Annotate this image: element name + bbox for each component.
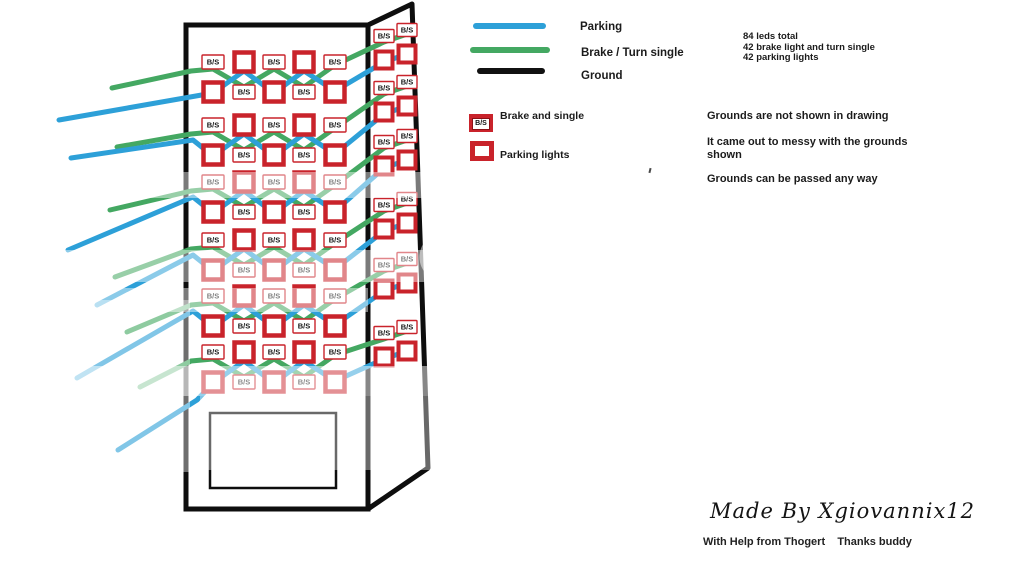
watermark-band	[0, 172, 438, 198]
led-brake-single-label: B/S	[238, 151, 251, 160]
led-brake-single-label: B/S	[298, 151, 311, 160]
led-brake-single-label: B/S	[401, 26, 414, 35]
note-messy-line1: It came out to messy with the grounds	[707, 136, 907, 148]
stat-total-leds: 84 leds total	[743, 32, 875, 43]
led-parking	[376, 221, 393, 238]
led-brake-single-label: B/S	[401, 323, 414, 332]
led-parking	[235, 116, 254, 135]
led-brake-single-label: B/S	[207, 121, 220, 130]
led-parking	[204, 317, 223, 336]
led-parking	[376, 158, 393, 175]
led-parking	[295, 231, 314, 250]
led-brake-single-label: B/S	[238, 322, 251, 331]
led-parking	[204, 83, 223, 102]
led-brake-single-label: B/S	[378, 84, 391, 93]
led-parking	[376, 281, 393, 298]
led-parking	[376, 104, 393, 121]
led-parking	[235, 343, 254, 362]
led-brake-single-label: B/S	[378, 329, 391, 338]
led-parking	[204, 203, 223, 222]
led-brake-single-label: B/S	[401, 132, 414, 141]
led-brake-single-label: B/S	[329, 348, 342, 357]
led-parking	[399, 215, 416, 232]
led-brake-single-label: B/S	[378, 138, 391, 147]
brake-single-led-icon-label: B/S	[472, 118, 490, 130]
legend-label-brake-single: Brake and single	[500, 110, 584, 122]
made-by-signature: Made By Xgiovannix12	[710, 499, 975, 523]
led-brake-single-label: B/S	[268, 348, 281, 357]
watermark-band	[0, 300, 190, 472]
led-parking	[295, 343, 314, 362]
led-brake-single-label: B/S	[329, 236, 342, 245]
wiring-diagram-page: B/SB/SB/SB/SB/SB/SB/SB/SB/SB/SB/SB/SB/SB…	[0, 0, 1024, 563]
led-parking	[399, 152, 416, 169]
led-parking	[376, 52, 393, 69]
led-parking	[326, 203, 345, 222]
stat-parking-leds: 42 parking lights	[743, 53, 875, 64]
led-parking	[265, 83, 284, 102]
legend-label-parking: Parking	[580, 21, 622, 33]
led-parking	[204, 146, 223, 165]
led-brake-single-label: B/S	[207, 236, 220, 245]
led-brake-single-label: B/S	[298, 88, 311, 97]
led-brake-single-label: B/S	[207, 58, 220, 67]
note-grounds-passed: Grounds can be passed any way	[707, 173, 878, 185]
led-brake-single-label: B/S	[238, 88, 251, 97]
led-parking	[235, 53, 254, 72]
led-brake-single-label: B/S	[329, 121, 342, 130]
brake-single-led-icon: B/S	[469, 114, 493, 132]
led-parking	[326, 317, 345, 336]
led-parking	[295, 53, 314, 72]
led-parking	[265, 203, 284, 222]
led-brake-single-label: B/S	[268, 121, 281, 130]
watermark-band	[0, 250, 438, 282]
ground-wire-swatch	[477, 68, 545, 74]
led-parking	[376, 349, 393, 366]
led-parking	[265, 146, 284, 165]
led-brake-single-label: B/S	[378, 201, 391, 210]
watermark-band	[200, 396, 432, 470]
led-parking	[399, 98, 416, 115]
led-parking	[265, 317, 284, 336]
led-brake-single-label: B/S	[268, 58, 281, 67]
note-grounds-not-shown: Grounds are not shown in drawing	[707, 110, 889, 122]
wiring-diagram-canvas: B/SB/SB/SB/SB/SB/SB/SB/SB/SB/SB/SB/SB/SB…	[0, 0, 1024, 563]
led-brake-single-label: B/S	[329, 58, 342, 67]
brake-turn-wire-swatch	[470, 47, 550, 53]
led-count-notes: 84 leds total 42 brake light and turn si…	[743, 32, 875, 64]
note-messy-line2: shown	[707, 149, 742, 161]
legend-label-parking-lights: Parking lights	[500, 149, 569, 161]
led-brake-single-label: B/S	[238, 208, 251, 217]
legend-label-ground: Ground	[581, 70, 623, 82]
led-brake-single-label: B/S	[401, 78, 414, 87]
help-credit: With Help from Thogert Thanks buddy	[703, 536, 912, 548]
led-brake-single-label: B/S	[378, 32, 391, 41]
led-parking	[326, 146, 345, 165]
led-brake-single-label: B/S	[298, 322, 311, 331]
led-parking	[326, 83, 345, 102]
parking-led-icon	[470, 141, 494, 161]
legend-label-brake-turn: Brake / Turn single	[581, 47, 684, 59]
led-brake-single-label: B/S	[298, 208, 311, 217]
led-parking	[399, 343, 416, 360]
led-brake-single-label: B/S	[268, 236, 281, 245]
led-brake-single-label: B/S	[207, 348, 220, 357]
led-parking	[235, 231, 254, 250]
led-parking	[399, 46, 416, 63]
parking-wire-swatch	[473, 23, 546, 29]
led-parking	[295, 116, 314, 135]
